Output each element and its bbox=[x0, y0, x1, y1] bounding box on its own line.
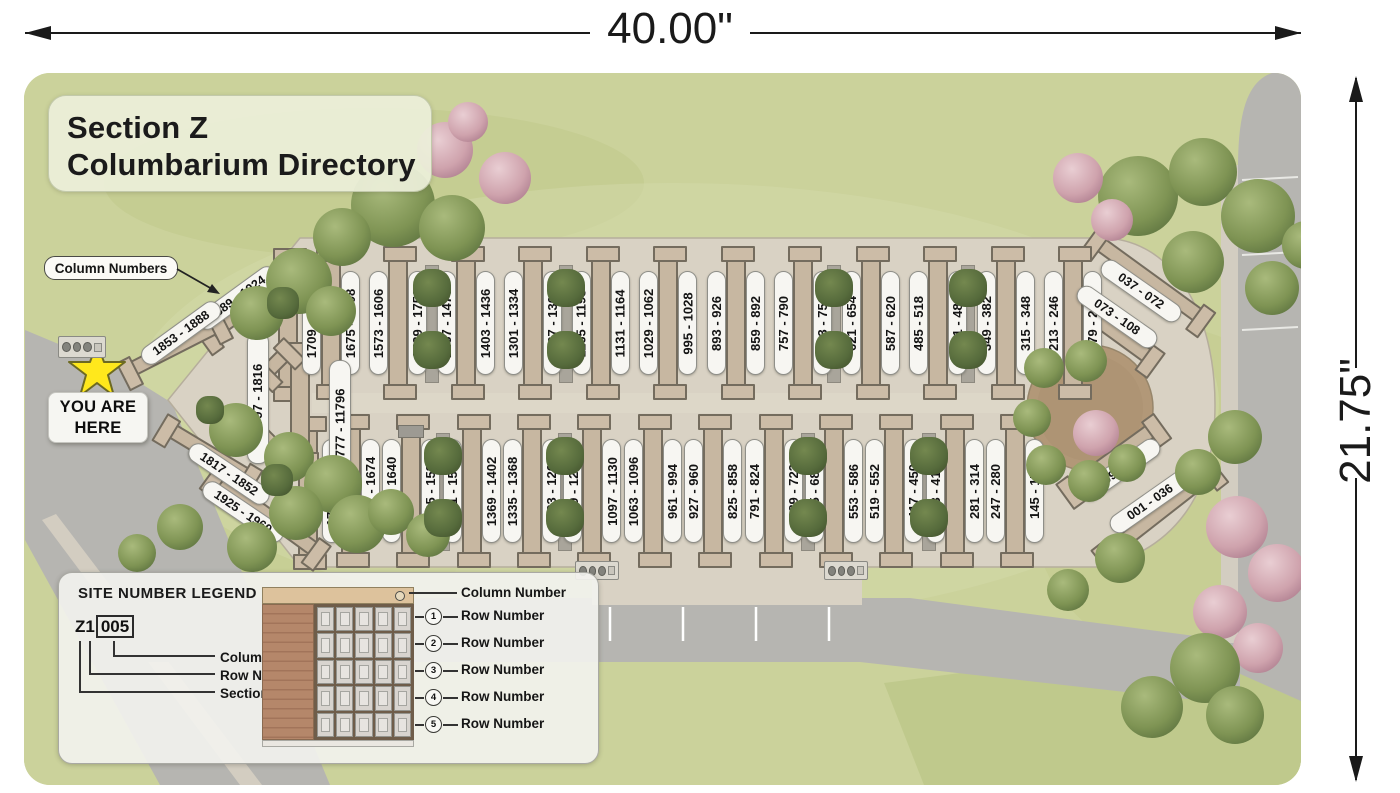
page: { "dimensions": { "width": "40.00\"", "h… bbox=[0, 0, 1400, 793]
row-number-label: Row Number bbox=[461, 716, 544, 731]
right-dimension-arrow-down bbox=[1349, 756, 1363, 782]
site-code-column: 005 bbox=[96, 615, 134, 638]
map-title-line2: Columbarium Directory bbox=[67, 146, 431, 183]
site-code-example: Z1005 bbox=[75, 617, 134, 637]
niche-cell bbox=[394, 660, 411, 684]
top-dimension-line-left bbox=[25, 32, 590, 34]
niche-cell bbox=[375, 713, 392, 737]
height-dimension-label: 21.75" bbox=[1331, 321, 1381, 521]
column-number-marker-icon bbox=[395, 591, 405, 601]
niche-cell bbox=[336, 607, 353, 631]
column-numbers-arrow bbox=[174, 265, 226, 301]
niche-cell bbox=[355, 686, 372, 710]
row-number-label: Row Number bbox=[461, 635, 544, 650]
site-number-legend: SITE NUMBER LEGEND Z1005 Column Number R… bbox=[58, 572, 599, 764]
column-numbers-callout: Column Numbers bbox=[44, 256, 178, 280]
niche-grid bbox=[314, 604, 414, 740]
width-dimension-label: 40.00" bbox=[590, 4, 750, 54]
row-number-label: Row Number bbox=[461, 608, 544, 623]
leader-line bbox=[443, 724, 458, 726]
niche-cell bbox=[317, 633, 334, 657]
trash-receptacles bbox=[58, 336, 106, 358]
niche-cell bbox=[336, 686, 353, 710]
leader-line bbox=[443, 616, 458, 618]
niche-cell bbox=[355, 607, 372, 631]
niche-cell bbox=[394, 633, 411, 657]
niche-cell bbox=[317, 607, 334, 631]
leader-line bbox=[415, 697, 424, 699]
right-dimension-arrow-up bbox=[1349, 76, 1363, 102]
leader-line bbox=[415, 670, 424, 672]
right-dimension-line-bottom bbox=[1355, 478, 1357, 780]
niche-cell bbox=[355, 633, 372, 657]
row-number-circle: 3 bbox=[425, 662, 442, 679]
niche-cell bbox=[336, 633, 353, 657]
leader-line bbox=[443, 643, 458, 645]
you-are-here-line2: HERE bbox=[74, 418, 121, 439]
niche-cell bbox=[394, 713, 411, 737]
niche-cell bbox=[375, 607, 392, 631]
map-title-line1: Section Z bbox=[67, 109, 431, 146]
leader-line bbox=[415, 724, 424, 726]
wall-column-number-callout: Column Number bbox=[461, 585, 566, 600]
niche-cell bbox=[355, 660, 372, 684]
niche-cell bbox=[336, 713, 353, 737]
niche-cell bbox=[317, 660, 334, 684]
row-number-circle: 5 bbox=[425, 716, 442, 733]
map-title: Section Z Columbarium Directory bbox=[48, 95, 432, 192]
you-are-here-line1: YOU ARE bbox=[60, 397, 137, 418]
row-number-circle: 1 bbox=[425, 608, 442, 625]
leader-line bbox=[443, 697, 458, 699]
top-dimension-line-right bbox=[750, 32, 1301, 34]
leader-line bbox=[409, 592, 457, 594]
niche-cell bbox=[355, 713, 372, 737]
niche-cell bbox=[375, 686, 392, 710]
leader-line bbox=[415, 643, 424, 645]
you-are-here-box: YOU ARE HERE bbox=[48, 392, 148, 443]
site-map: 1709 - 17421675 - 17081573 - 16061539 - … bbox=[24, 73, 1301, 785]
legend-heading: SITE NUMBER LEGEND bbox=[78, 585, 257, 602]
leader-line bbox=[79, 641, 215, 693]
niche-cell bbox=[317, 713, 334, 737]
niche-wall-brick-column bbox=[262, 604, 314, 740]
site-code-prefix: Z1 bbox=[75, 617, 95, 636]
niche-cell bbox=[317, 686, 334, 710]
niche-cell bbox=[394, 686, 411, 710]
leader-line bbox=[415, 616, 424, 618]
niche-cell bbox=[394, 607, 411, 631]
trash-receptacles bbox=[824, 561, 868, 580]
overlay-layer: Section Z Columbarium Directory Column N… bbox=[24, 73, 1301, 785]
niche-wall-base bbox=[262, 740, 414, 747]
row-number-label: Row Number bbox=[461, 662, 544, 677]
row-number-circle: 4 bbox=[425, 689, 442, 706]
niche-cell bbox=[375, 633, 392, 657]
row-number-circle: 2 bbox=[425, 635, 442, 652]
leader-line bbox=[443, 670, 458, 672]
row-number-label: Row Number bbox=[461, 689, 544, 704]
niche-cell bbox=[375, 660, 392, 684]
top-dimension-arrow-right bbox=[1275, 26, 1301, 40]
niche-cell bbox=[336, 660, 353, 684]
niche-wall-lintel bbox=[262, 587, 414, 604]
top-dimension-arrow-left bbox=[25, 26, 51, 40]
bench bbox=[398, 425, 424, 438]
